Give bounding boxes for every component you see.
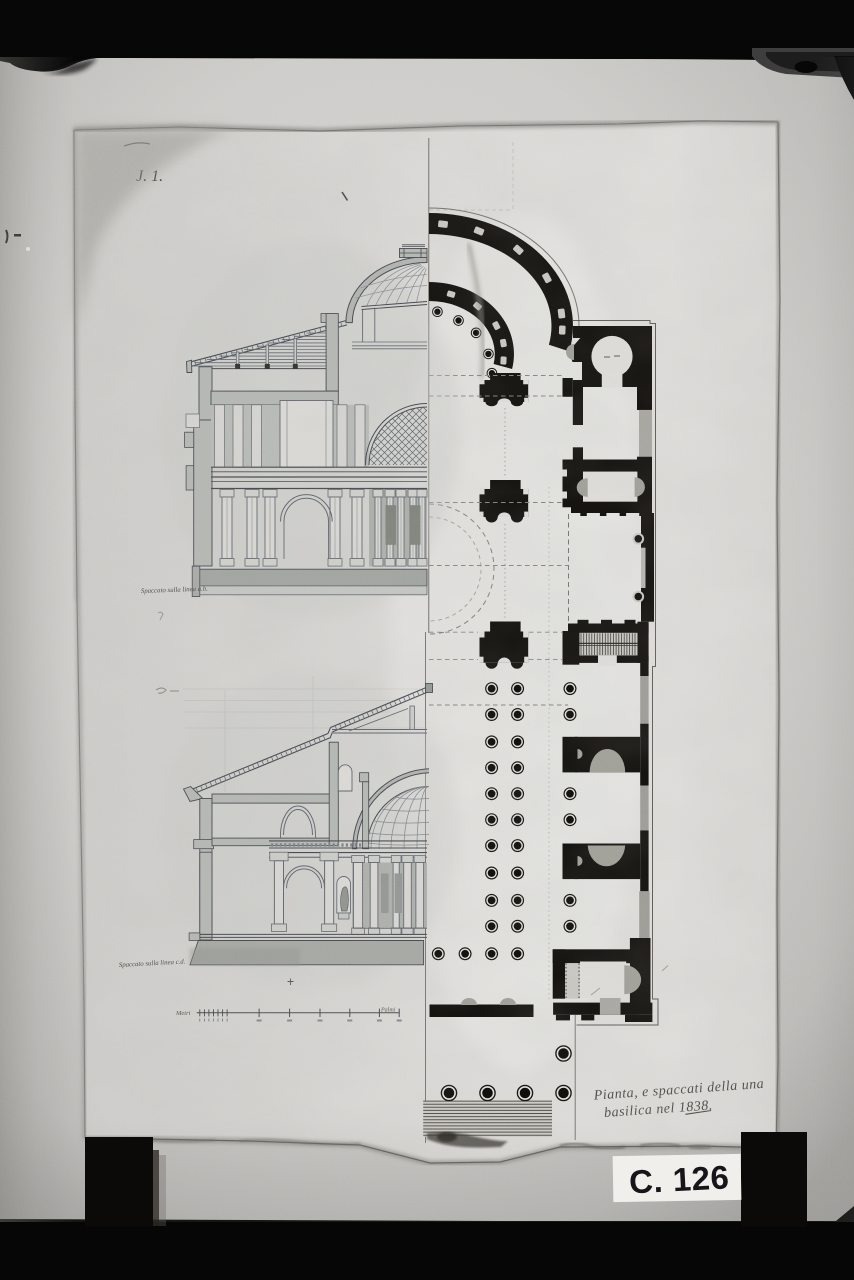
svg-text:C. 126: C. 126 xyxy=(628,1158,730,1200)
